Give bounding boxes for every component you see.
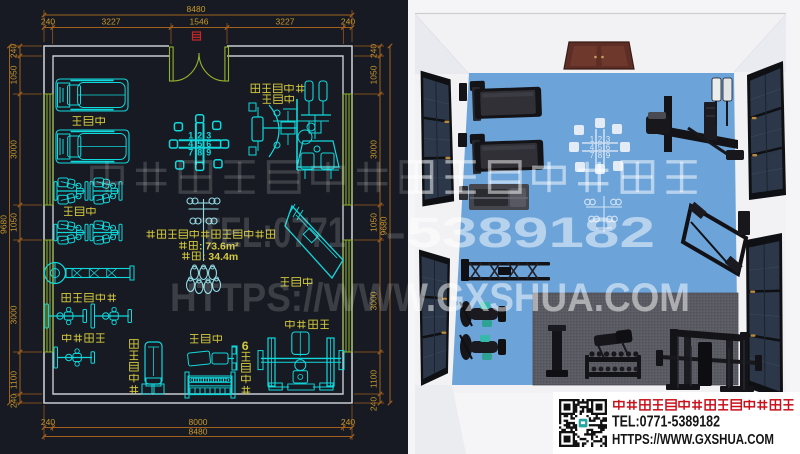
svg-text:TEL:0771-5389182: TEL:0771-5389182 xyxy=(612,414,720,431)
svg-text:240: 240 xyxy=(369,397,379,411)
svg-text:1546: 1546 xyxy=(190,17,209,27)
svg-text:9: 9 xyxy=(206,148,211,158)
svg-text:HTTPS://WWW.GXSHUA.COM: HTTPS://WWW.GXSHUA.COM xyxy=(612,432,774,448)
svg-text:1100: 1100 xyxy=(369,370,379,389)
svg-text:7: 7 xyxy=(590,151,595,160)
svg-text:8: 8 xyxy=(197,148,202,158)
svg-text:9: 9 xyxy=(606,151,611,160)
svg-text:240: 240 xyxy=(41,417,55,427)
svg-text:6: 6 xyxy=(242,339,249,353)
svg-text:3000: 3000 xyxy=(369,140,379,159)
svg-text:8: 8 xyxy=(598,151,603,160)
svg-text:1050: 1050 xyxy=(369,65,379,84)
svg-text:8480: 8480 xyxy=(187,4,206,14)
svg-text:8480: 8480 xyxy=(189,427,208,437)
svg-text:3227: 3227 xyxy=(276,17,295,27)
svg-text:: 34.4m: : 34.4m xyxy=(202,251,238,263)
svg-text:240: 240 xyxy=(41,17,55,27)
svg-text:3000: 3000 xyxy=(369,291,379,310)
svg-text:8000: 8000 xyxy=(189,417,208,427)
svg-text:9680: 9680 xyxy=(0,215,9,234)
svg-text:1050: 1050 xyxy=(369,213,379,232)
svg-text:7: 7 xyxy=(188,148,193,158)
svg-text:9680: 9680 xyxy=(379,216,389,235)
svg-text:3227: 3227 xyxy=(102,17,121,27)
